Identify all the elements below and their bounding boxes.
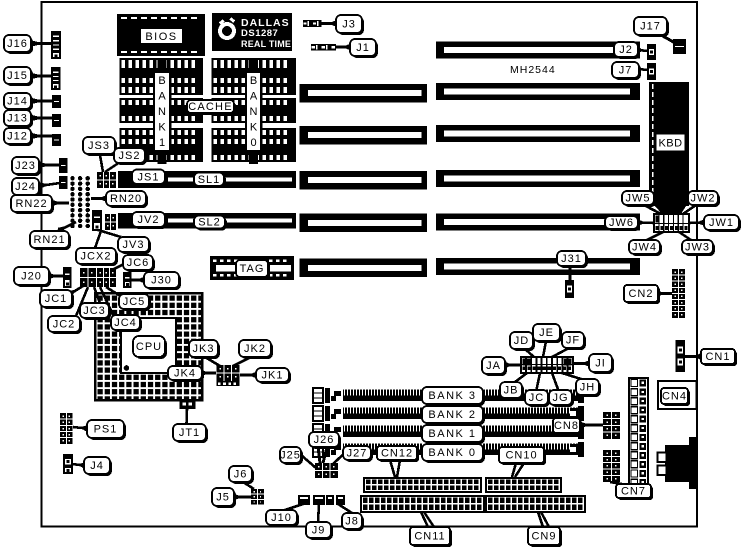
svg-text:CN11: CN11 [414, 531, 445, 543]
svg-text:CN8: CN8 [554, 420, 579, 432]
svg-text:JC2: JC2 [53, 319, 76, 331]
svg-text:J6: J6 [234, 469, 248, 481]
svg-text:J30: J30 [151, 275, 172, 287]
svg-text:CN12: CN12 [381, 448, 413, 460]
svg-text:JC: JC [529, 392, 544, 404]
svg-text:JB: JB [504, 385, 519, 397]
svg-text:JW1: JW1 [709, 217, 734, 229]
svg-text:JW2: JW2 [691, 193, 716, 205]
svg-text:JE: JE [539, 327, 554, 339]
svg-text:BANK 0: BANK 0 [428, 447, 476, 459]
svg-text:JS1: JS1 [138, 172, 160, 184]
svg-text:CN1: CN1 [705, 351, 730, 363]
svg-text:BIOS: BIOS [145, 31, 177, 43]
svg-text:BANK 3: BANK 3 [428, 390, 476, 402]
svg-text:K: K [158, 122, 166, 134]
svg-text:B: B [250, 75, 257, 87]
svg-text:RN22: RN22 [15, 198, 47, 210]
svg-text:JF: JF [566, 335, 580, 347]
svg-text:JW3: JW3 [685, 242, 710, 254]
svg-text:JS2: JS2 [119, 150, 141, 162]
svg-text:J12: J12 [7, 131, 28, 143]
svg-text:JK3: JK3 [193, 343, 215, 355]
svg-text:CN9: CN9 [531, 531, 556, 543]
svg-text:CN7: CN7 [621, 486, 646, 498]
svg-text:A: A [158, 91, 166, 103]
svg-text:JS3: JS3 [88, 140, 110, 152]
svg-text:JC1: JC1 [45, 293, 68, 305]
svg-text:JK1: JK1 [262, 370, 284, 382]
svg-text:JC5: JC5 [123, 296, 146, 308]
svg-text:JC3: JC3 [83, 305, 106, 317]
svg-text:J16: J16 [7, 38, 28, 50]
svg-text:SL1: SL1 [198, 174, 221, 186]
svg-text:JT1: JT1 [179, 427, 200, 439]
svg-text:JW6: JW6 [609, 217, 634, 229]
svg-text:J5: J5 [216, 492, 230, 504]
svg-text:A: A [250, 91, 258, 103]
svg-text:J27: J27 [347, 448, 368, 460]
svg-text:J14: J14 [7, 96, 28, 108]
svg-text:B: B [158, 75, 165, 87]
svg-text:PS1: PS1 [94, 424, 118, 436]
svg-text:J7: J7 [619, 65, 633, 77]
svg-text:CPU: CPU [136, 341, 162, 353]
svg-text:J25: J25 [280, 450, 301, 462]
svg-text:MH2544: MH2544 [510, 64, 556, 76]
svg-text:SL2: SL2 [198, 217, 221, 229]
svg-text:J24: J24 [15, 181, 36, 193]
svg-text:J8: J8 [345, 516, 359, 528]
svg-text:JH: JH [580, 382, 595, 394]
svg-text:JK2: JK2 [244, 343, 266, 355]
svg-text:BANK 2: BANK 2 [428, 409, 476, 421]
svg-text:J23: J23 [15, 160, 36, 172]
svg-text:JC4: JC4 [114, 317, 137, 329]
svg-text:J9: J9 [312, 525, 326, 537]
svg-text:1: 1 [159, 137, 165, 149]
svg-text:BANK 1: BANK 1 [428, 428, 476, 440]
svg-text:J31: J31 [561, 253, 582, 265]
svg-text:J26: J26 [314, 434, 335, 446]
svg-text:JCX2: JCX2 [81, 251, 112, 263]
svg-text:DS1287: DS1287 [241, 28, 278, 39]
svg-text:CN10: CN10 [505, 450, 537, 462]
svg-text:J10: J10 [271, 512, 292, 524]
svg-text:JK4: JK4 [174, 368, 196, 380]
svg-text:J20: J20 [21, 271, 42, 283]
svg-text:JV2: JV2 [138, 214, 160, 226]
svg-text:JD: JD [514, 335, 529, 347]
svg-text:CN2: CN2 [628, 288, 653, 300]
svg-text:JV3: JV3 [123, 239, 145, 251]
svg-text:J4: J4 [90, 460, 104, 472]
svg-text:CN4: CN4 [662, 391, 687, 403]
svg-text:JA: JA [486, 360, 501, 372]
svg-text:JC6: JC6 [127, 257, 150, 269]
svg-text:JW5: JW5 [626, 193, 651, 205]
svg-text:N: N [158, 106, 166, 118]
svg-text:TAG: TAG [240, 263, 265, 275]
svg-text:KBD: KBD [658, 138, 682, 150]
svg-text:J13: J13 [7, 113, 28, 125]
svg-text:REAL TIME: REAL TIME [241, 39, 291, 49]
svg-text:JG: JG [552, 392, 568, 404]
svg-text:J17: J17 [640, 21, 661, 33]
svg-text:RN20: RN20 [110, 193, 142, 205]
svg-text:J15: J15 [7, 70, 28, 82]
svg-text:N: N [250, 106, 258, 118]
svg-text:RN21: RN21 [33, 234, 65, 246]
svg-text:CACHE: CACHE [188, 101, 233, 113]
svg-text:JI: JI [595, 358, 606, 370]
svg-text:J2: J2 [619, 44, 633, 56]
svg-text:K: K [250, 122, 258, 134]
svg-text:J1: J1 [356, 42, 370, 54]
svg-text:JW4: JW4 [632, 242, 657, 254]
svg-text:0: 0 [250, 137, 256, 149]
svg-text:J3: J3 [342, 19, 356, 31]
